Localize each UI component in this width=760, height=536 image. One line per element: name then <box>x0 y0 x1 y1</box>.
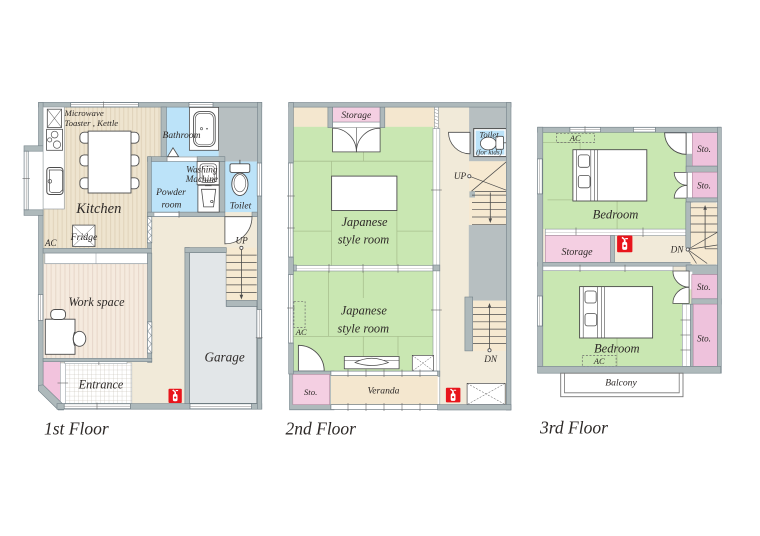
svg-text:DN: DN <box>670 244 685 254</box>
svg-text:Veranda: Veranda <box>368 385 400 396</box>
svg-text:Work space: Work space <box>68 295 125 309</box>
svg-text:Sto.: Sto. <box>697 144 711 154</box>
svg-text:Toaster , Kettle: Toaster , Kettle <box>65 118 119 128</box>
svg-text:Garage: Garage <box>204 350 244 365</box>
svg-text:Storage: Storage <box>341 110 372 121</box>
svg-text:Japanese: Japanese <box>341 215 388 229</box>
svg-text:Powder: Powder <box>155 187 186 198</box>
svg-text:Toilet: Toilet <box>479 129 499 139</box>
svg-text:Sto.: Sto. <box>304 387 317 397</box>
svg-text:Balcony: Balcony <box>605 377 637 388</box>
svg-text:Sto.: Sto. <box>697 180 711 190</box>
svg-text:Sto.: Sto. <box>697 282 711 292</box>
svg-text:Microwave: Microwave <box>64 108 104 118</box>
svg-text:UP: UP <box>454 171 467 181</box>
svg-text:Entrance: Entrance <box>78 377 124 391</box>
svg-text:2nd Floor: 2nd Floor <box>286 419 357 439</box>
svg-text:DN: DN <box>483 354 498 364</box>
svg-text:AC: AC <box>44 238 57 248</box>
svg-text:style room: style room <box>338 233 390 247</box>
svg-text:AC: AC <box>593 356 605 366</box>
svg-text:Japanese: Japanese <box>341 304 388 318</box>
svg-text:Bedroom: Bedroom <box>594 341 640 355</box>
svg-text:Kitchen: Kitchen <box>75 201 121 217</box>
svg-text:AC: AC <box>295 327 307 337</box>
svg-text:Toilet: Toilet <box>230 201 252 212</box>
svg-text:style room: style room <box>338 321 390 335</box>
svg-text:1st Floor: 1st Floor <box>44 419 109 439</box>
svg-text:room: room <box>162 199 182 210</box>
svg-text:Machine: Machine <box>185 174 218 184</box>
svg-text:Washing: Washing <box>186 164 218 174</box>
svg-text:3rd Floor: 3rd Floor <box>539 418 608 438</box>
svg-text:Bathroom: Bathroom <box>162 130 200 141</box>
svg-text:Storage: Storage <box>561 247 593 258</box>
svg-text:Sto.: Sto. <box>697 333 711 343</box>
svg-text:AC: AC <box>569 133 581 143</box>
svg-text:Fridge: Fridge <box>70 232 98 243</box>
svg-text:Bedroom: Bedroom <box>593 207 639 221</box>
svg-text:UP: UP <box>235 236 248 246</box>
svg-text:(for kids): (for kids) <box>476 148 503 156</box>
